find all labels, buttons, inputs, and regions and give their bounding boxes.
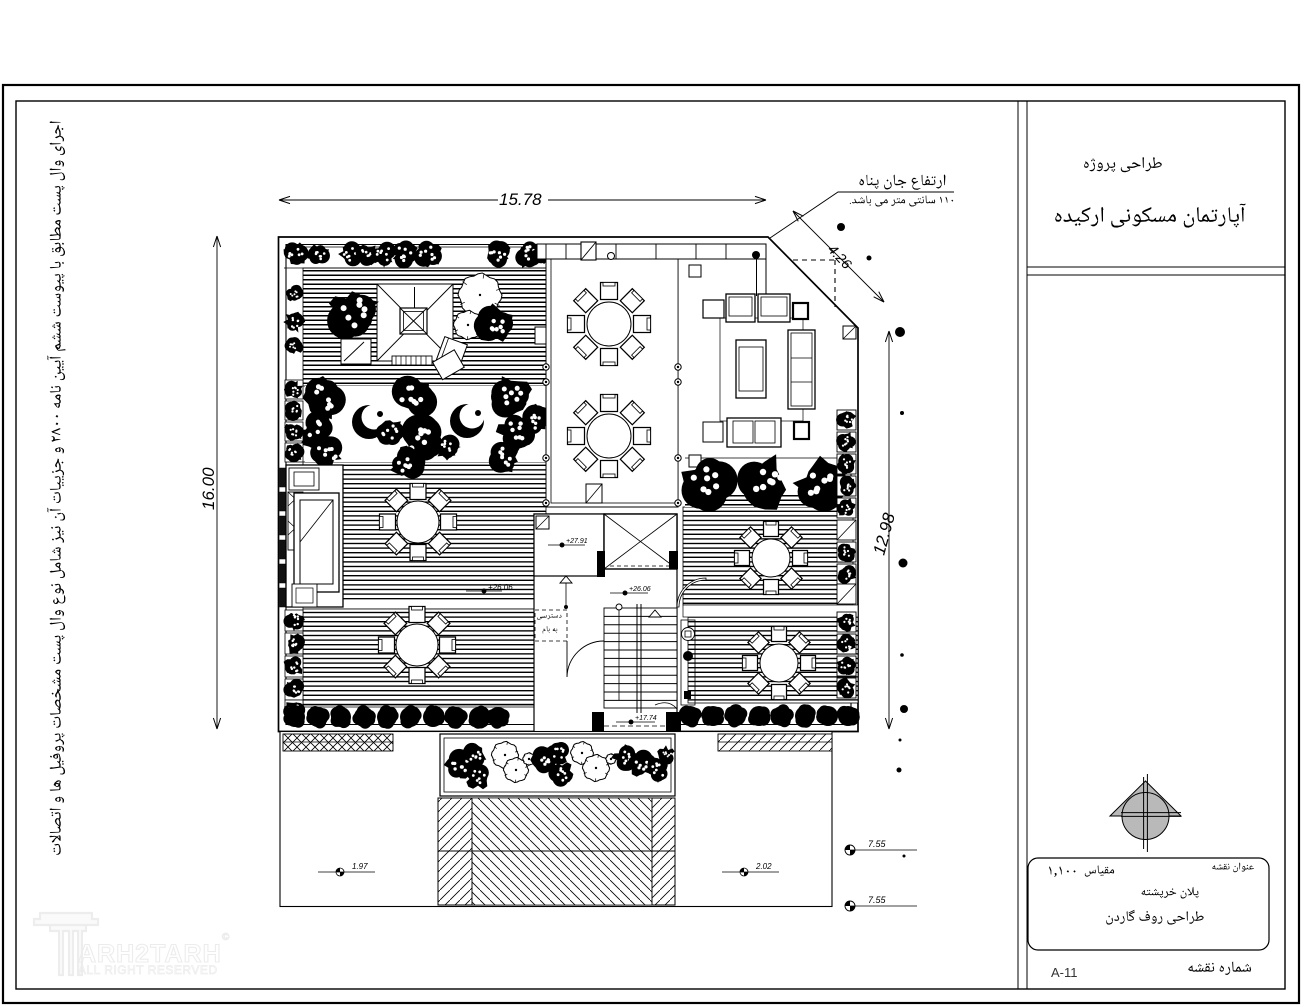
svg-text:+27.91: +27.91 [566, 538, 588, 545]
svg-text:+17.74: +17.74 [635, 715, 657, 722]
svg-text:+26.06: +26.06 [488, 583, 513, 592]
svg-text:4.26: 4.26 [825, 241, 855, 272]
svg-text:ALL RIGHT RESERVED: ALL RIGHT RESERVED [78, 963, 218, 977]
svg-text:A-11: A-11 [1051, 965, 1078, 980]
svg-text:12.98: 12.98 [870, 510, 900, 557]
svg-text:©: © [222, 932, 230, 943]
svg-text:15.78: 15.78 [499, 190, 542, 209]
svg-text:16.00: 16.00 [199, 467, 218, 510]
svg-text:7.55: 7.55 [868, 895, 887, 905]
svg-text:+26.06: +26.06 [629, 586, 651, 593]
svg-text:7.55: 7.55 [868, 839, 887, 849]
svg-text:1.97: 1.97 [352, 862, 368, 871]
svg-text:2.02: 2.02 [755, 862, 772, 871]
